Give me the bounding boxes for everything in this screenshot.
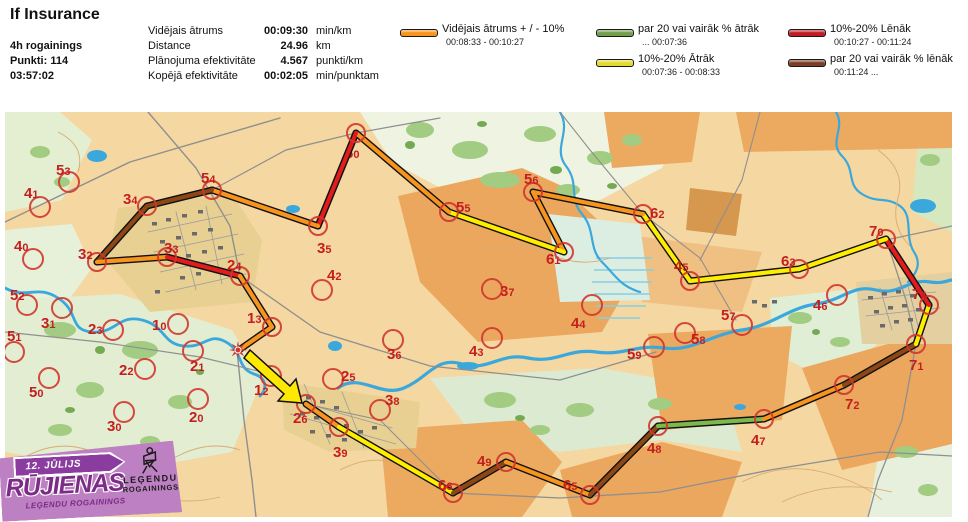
building (772, 300, 777, 304)
building (192, 232, 197, 236)
building (888, 306, 893, 310)
stat-value: 4.567 (238, 55, 308, 67)
vegetation-patch (515, 415, 525, 421)
building (902, 304, 907, 308)
legendu-badge: LEĢENDU ROGAININGS (120, 445, 180, 494)
page-title: If Insurance (10, 6, 100, 24)
stat-unit: punkti/km (316, 55, 363, 67)
vegetation-patch (607, 183, 617, 189)
building (752, 300, 757, 304)
start-symbol (229, 341, 247, 359)
building (868, 296, 873, 300)
legend-swatch-fast10 (596, 59, 634, 67)
building (166, 218, 171, 222)
vegetation-patch (48, 424, 72, 436)
legend-swatch-slow20 (788, 59, 826, 67)
building (208, 228, 213, 232)
stat-value: 00:09:30 (238, 25, 308, 37)
building (320, 400, 325, 404)
legend-swatch-slow10 (788, 29, 826, 37)
building (880, 324, 885, 328)
building (155, 290, 160, 294)
building (342, 438, 347, 442)
stat-value: 00:02:05 (238, 70, 308, 82)
building (180, 276, 185, 280)
lake (87, 150, 107, 162)
building (762, 304, 767, 308)
building (326, 434, 331, 438)
building (186, 254, 191, 258)
legend-swatch-fast20 (596, 29, 634, 37)
building (152, 222, 157, 226)
vegetation-patch (918, 484, 938, 496)
vegetation-patch (480, 172, 520, 188)
vegetation-patch (920, 154, 940, 166)
terrain-patch (604, 112, 700, 168)
legend-range-fast20: ... 00:07:36 (642, 37, 687, 47)
building (874, 310, 879, 314)
total-time: 03:57:02 (10, 70, 54, 82)
building (196, 272, 201, 276)
legend-label-fast10: 10%-20% Ātrāk (638, 53, 714, 65)
vegetation-patch (452, 141, 488, 159)
legend-swatch-avg (400, 29, 438, 37)
orienteer-icon (137, 446, 162, 474)
legend-label-fast20: par 20 vai vairāk % ātrāk (638, 23, 759, 35)
legend-label-slow20: par 20 vai vairāk % lēnāk (830, 53, 953, 65)
vegetation-patch (65, 407, 75, 413)
race-class: 4h rogainings (10, 40, 82, 52)
badge-line2: ROGAININGS (122, 482, 180, 494)
building (202, 250, 207, 254)
building (908, 318, 913, 322)
vegetation-patch (524, 126, 556, 142)
building (198, 210, 203, 214)
vegetation-patch (406, 122, 434, 138)
vegetation-patch (830, 337, 850, 347)
legend-range-slow20: 00:11:24 ... (834, 67, 878, 77)
vegetation-patch (477, 121, 487, 127)
lake (734, 404, 746, 410)
legend-range-slow10: 00:10:27 - 00:11:24 (834, 37, 911, 47)
stat-label: Distance (148, 40, 191, 52)
vegetation-patch (30, 146, 50, 158)
lake (328, 341, 342, 351)
vegetation-patch (76, 382, 104, 398)
vegetation-patch (405, 141, 415, 149)
building (310, 430, 315, 434)
rogaining-analysis-page: If Insurance 4h rogainings Punkti: 114 0… (0, 0, 968, 522)
building (334, 406, 339, 410)
terrain-patch (736, 112, 952, 152)
building (882, 292, 887, 296)
vegetation-patch (894, 446, 918, 458)
vegetation-patch (530, 425, 550, 435)
vegetation-patch (648, 398, 672, 410)
building (218, 246, 223, 250)
stat-label: Kopējā efektivitāte (148, 70, 238, 82)
vegetation-patch (566, 403, 594, 417)
building (372, 426, 377, 430)
stat-label: Vidējais ātrums (148, 25, 223, 37)
building (358, 430, 363, 434)
lake (286, 205, 300, 213)
stat-unit: km (316, 40, 331, 52)
legend-range-avg: 00:08:33 - 00:10:27 (446, 37, 524, 47)
vegetation-patch (622, 134, 642, 146)
building (896, 290, 901, 294)
legend-label-avg: Vidējais ātrums + / - 10% (442, 23, 564, 35)
legend-range-fast10: 00:07:36 - 00:08:33 (642, 67, 720, 77)
lake (910, 199, 936, 213)
vegetation-patch (812, 329, 820, 335)
vegetation-patch (95, 346, 105, 354)
building (176, 236, 181, 240)
vegetation-patch (788, 312, 812, 324)
legend-label-slow10: 10%-20% Lēnāk (830, 23, 911, 35)
building (894, 320, 899, 324)
points-total: Punkti: 114 (10, 55, 68, 67)
stat-unit: min/punktam (316, 70, 379, 82)
vegetation-patch (550, 166, 562, 174)
stat-value: 24.96 (238, 40, 308, 52)
vegetation-patch (484, 392, 516, 408)
stat-unit: min/km (316, 25, 351, 37)
building (182, 214, 187, 218)
